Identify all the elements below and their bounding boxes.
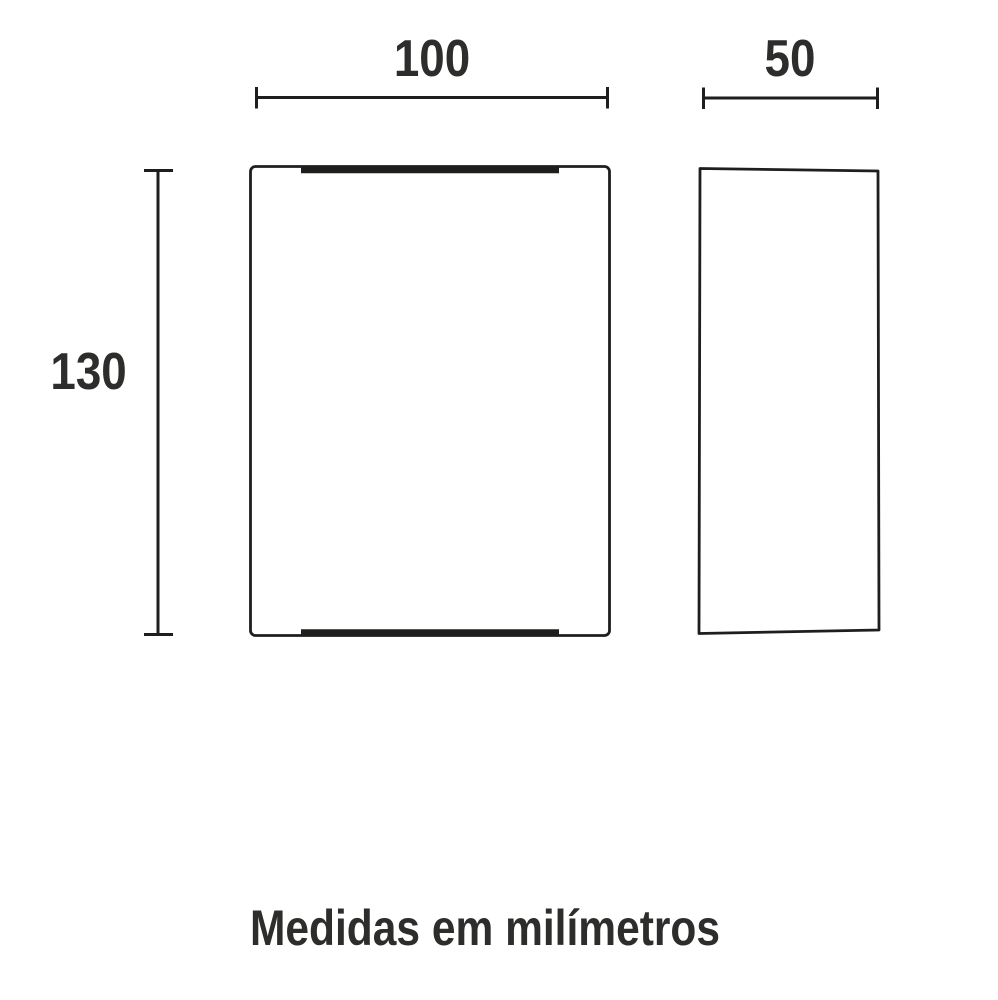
drawing-canvas — [0, 0, 998, 1000]
side-view-outline — [699, 169, 879, 634]
front-view-outline — [251, 167, 610, 636]
front-width-dimension-line — [256, 87, 608, 109]
front-width-dimension-label: 100 — [394, 33, 470, 85]
front-height-dimension-line — [144, 171, 173, 635]
front-view — [251, 167, 610, 636]
dimension-drawing: 100 50 130 Medidas em milímetros — [0, 0, 998, 1000]
front-height-dimension-label: 130 — [51, 346, 127, 398]
side-depth-dimension-label: 50 — [765, 33, 816, 85]
units-caption: Medidas em milímetros — [250, 903, 720, 953]
side-view — [699, 169, 879, 634]
side-depth-dimension-line — [703, 88, 878, 110]
